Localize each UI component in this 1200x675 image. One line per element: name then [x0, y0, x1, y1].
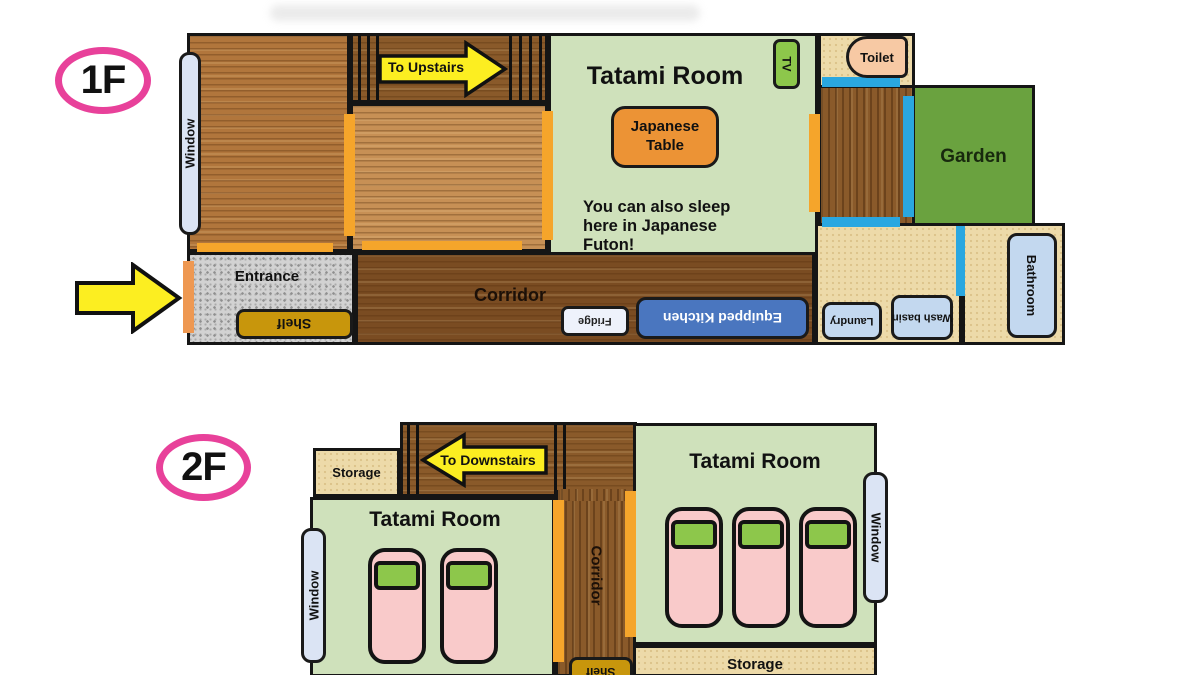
futon-bed [440, 548, 498, 664]
stair-step-line [416, 425, 419, 494]
corridor-2f-label: Corridor [588, 546, 605, 606]
tatami-2f-right-title: Tatami Room [660, 450, 850, 474]
futon-note: You can also sleep here in Japanese Futo… [583, 179, 758, 256]
laundry: Laundry [822, 302, 882, 340]
door-strip-orange [362, 241, 522, 250]
window-1f-left: Window [179, 52, 201, 235]
toilet-label: Toilet [860, 50, 894, 65]
wood-room-northwest [187, 33, 350, 252]
pillow [446, 561, 492, 590]
door-strip-blue [956, 226, 965, 296]
door-strip-orange [553, 500, 564, 662]
storage-2f-top: Storage [313, 448, 400, 497]
window-2f-left-label: Window [306, 571, 321, 621]
storage-2f-bottom: Storage [633, 645, 877, 675]
pillow [805, 520, 851, 549]
pillow [374, 561, 420, 590]
door-strip-orange [542, 111, 553, 240]
stair-step-line [407, 425, 410, 494]
bathroom: Bathroom [1007, 233, 1057, 338]
futon-bed [368, 548, 426, 664]
door-strip-blue [903, 96, 914, 217]
tv-unit: TV [773, 39, 800, 89]
laundry-bathroom-wall [959, 294, 965, 345]
stairs-corridor-junction [561, 489, 631, 501]
garden: Garden [912, 85, 1035, 228]
pillow [671, 520, 717, 549]
scan-artifact [270, 5, 700, 21]
floor-2-badge-label: 2F [181, 445, 226, 490]
door-strip-blue [822, 217, 900, 227]
storage-2f-bottom-label: Storage [727, 656, 783, 673]
to-upstairs-label: To Upstairs [381, 59, 471, 75]
wash-basin: Wash basin [891, 295, 953, 340]
entrance-door-strip [183, 261, 194, 333]
stair-step-line [554, 425, 557, 494]
window-1f-left-label: Window [183, 119, 198, 169]
floor-1-badge: 1F [55, 47, 151, 114]
entrance-label: Entrance [222, 268, 312, 285]
futon-bed [665, 507, 723, 628]
door-strip-orange [625, 491, 636, 637]
tatami-1f-title: Tatami Room [560, 62, 770, 91]
window-2f-right: Window [863, 472, 888, 603]
stair-step-line [367, 36, 370, 100]
window-2f-right-label: Window [868, 513, 883, 563]
stair-step-line [519, 36, 522, 100]
stair-step-line [539, 36, 542, 100]
shelf-2f: Shelf [569, 657, 633, 675]
fridge: Fridge [561, 306, 629, 336]
door-strip-orange [197, 243, 333, 252]
window-2f-left: Window [301, 528, 326, 663]
futon-bed [799, 507, 857, 628]
garden-label: Garden [940, 146, 1007, 168]
stair-step-line [358, 36, 361, 100]
storage-2f-top-label: Storage [332, 465, 380, 480]
closet-passage [818, 85, 915, 226]
japanese-table: Japanese Table [611, 106, 719, 168]
floor-2-badge: 2F [156, 434, 251, 501]
toilet-icon: Toilet [846, 36, 908, 78]
corridor-1f-label: Corridor [450, 285, 570, 306]
stair-step-line [563, 425, 566, 494]
floor-plan-canvas: 1F Garden Window Tatami Room TV [0, 0, 1200, 675]
door-strip-orange [344, 114, 355, 236]
corridor-2f-labelwrap: Corridor [580, 528, 612, 623]
to-downstairs-label: To Downstairs [432, 452, 544, 468]
stair-step-line [529, 36, 532, 100]
tatami-2f-left-title: Tatami Room [340, 508, 530, 532]
door-strip-orange [809, 114, 820, 212]
pillow [738, 520, 784, 549]
door-strip-blue [822, 77, 900, 87]
tv-label: TV [780, 56, 794, 71]
futon-bed [732, 507, 790, 628]
wood-room-middle [350, 103, 548, 252]
stair-step-line [509, 36, 512, 100]
floor-1-badge-label: 1F [81, 58, 126, 103]
equipped-kitchen: Equipped Kitchen [636, 297, 809, 339]
shelf-1f: Shelf [236, 309, 353, 339]
entrance-arrow-icon [75, 262, 183, 334]
